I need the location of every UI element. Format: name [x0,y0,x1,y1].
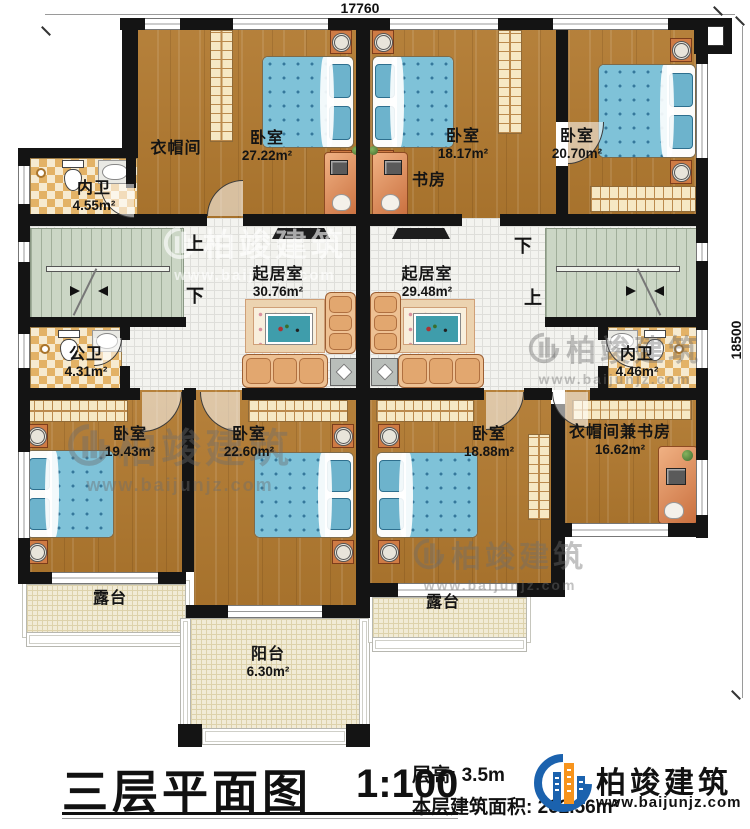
bed [376,452,478,538]
coffee-table [266,314,312,344]
party-wall [356,28,370,618]
dimension-tick [731,690,741,700]
stair-arrow [626,286,636,296]
balcony-pillar [346,724,370,747]
balcony-pillar [178,724,202,747]
window [18,166,30,204]
room-label-bath: 公卫4.31m² [65,346,108,379]
computer-monitor [666,468,686,485]
sliding-door [228,605,322,618]
window [553,18,668,30]
dimension-width: 17760 [300,0,420,16]
room-label-bath: 内卫4.46m² [616,346,659,379]
window [572,523,668,537]
bed-quilt [255,453,325,537]
bed [26,450,114,538]
room-label-bedroom: 卧室19.43m² [105,426,155,459]
nightstand [332,424,354,448]
terrace-right-parapet [372,637,527,652]
floor-height-note: 层高: 3.5m [412,760,505,787]
window [696,460,708,515]
nightstand [670,38,692,62]
terrace-left-parapet [26,632,186,647]
wall [322,605,356,618]
wall [500,214,696,226]
wall [18,317,186,327]
room-label-cloak-study: 衣帽间兼书房16.62m² [569,424,671,457]
wall [517,583,553,597]
nightstand [372,30,394,54]
window [18,334,30,368]
wardrobe [210,30,233,142]
room-label-terrace: 露台 [426,594,460,612]
stair-arrow [98,286,108,296]
stair-down-label: 下 [186,282,204,308]
window [233,18,328,30]
plant [682,450,693,461]
wardrobe [572,400,692,420]
wardrobe [248,400,348,422]
window [390,18,498,30]
chair [381,194,400,211]
wall [553,523,572,537]
nightstand [378,540,400,564]
wall [120,366,130,388]
balcony-parapet-front [202,728,348,745]
plant [369,146,378,155]
lamp-table [371,358,398,386]
room-label-bedroom: 卧室20.70m² [552,128,602,161]
shower-knob [674,344,684,354]
bed [254,452,354,538]
room-label-balcony: 阳台6.30m² [247,646,290,679]
window [52,572,158,584]
room-label-bath: 内卫4.55m² [73,180,116,213]
nightstand [670,160,692,184]
wall [590,388,696,400]
wall [30,214,207,226]
bed [598,64,696,158]
wall [186,605,228,618]
brand-url: www.baijunjz.com [596,794,741,811]
stair-up-label: 上 [186,230,204,256]
sofa [325,292,356,354]
bed-quilt [599,65,667,157]
wardrobe [498,30,522,134]
window [696,330,708,368]
title-underline [62,812,458,815]
stair-arrow [654,286,664,296]
wall [18,388,140,400]
room-label-bedroom: 卧室18.17m² [438,128,488,161]
wall [18,572,52,584]
brand-logo-icon [533,752,593,816]
stair-arrow [70,286,80,296]
nightstand [378,424,400,448]
computer-monitor [330,160,348,175]
wall [524,388,552,400]
stair-rail [46,266,170,272]
balcony-parapet-left [180,618,191,728]
shower-knob [40,344,50,354]
wardrobe [590,186,696,212]
wall [370,583,398,597]
bed-quilt [406,453,477,537]
coffee-table [414,314,460,344]
wall [158,572,186,584]
stairs-right [545,228,698,319]
window [145,18,180,30]
wall [551,404,565,597]
wall [370,388,484,400]
room-label-bedroom: 卧室27.22m² [242,130,292,163]
wall [545,317,696,327]
bed-quilt [52,451,113,537]
room-label-bedroom: 卧室18.88m² [464,426,514,459]
wall [556,28,568,122]
chair [332,194,351,211]
tv [392,228,450,239]
dimension-tick [735,16,745,26]
room-label-living: 起居室29.48m² [401,266,452,299]
sofa [242,354,328,388]
room-label-bedroom: 卧室22.60m² [224,426,274,459]
wardrobe [376,400,474,422]
wall [122,18,138,158]
floor-plan: 柏竣建筑 www.baijunjz.com 柏竣建筑 www.baijunjz.… [0,0,750,829]
dimension-height: 18500 [728,310,744,370]
title-underline-thin [62,818,458,819]
window [696,64,708,158]
nightstand [332,540,354,564]
shower-knob [36,168,46,178]
computer-monitor [384,160,402,175]
wardrobe [528,434,550,520]
room-label-cloakroom: 衣帽间 [150,140,201,158]
room-label-study: 书房 [412,172,446,190]
wall [668,523,696,537]
wall [243,214,356,226]
wall [370,214,462,226]
window [696,243,708,261]
balcony-parapet-right [359,618,370,728]
window [18,452,30,538]
wall [182,390,194,572]
room-label-terrace: 露台 [93,590,127,608]
room-label-living: 起居室30.76m² [252,266,303,299]
chair [664,502,684,519]
stairs-left [30,228,184,319]
stair-down-label: 下 [514,232,532,258]
sofa [370,292,401,354]
lamp-table [330,358,357,386]
window [18,242,30,262]
dimension-tick [41,26,51,36]
nightstand [330,30,352,54]
wall [18,148,136,158]
wardrobe [24,400,128,422]
stair-rail [556,266,680,272]
sofa [398,354,484,388]
wall [598,366,608,388]
tv [272,228,330,239]
wall [242,388,356,400]
wall [556,166,568,226]
stair-up-label: 上 [524,284,542,310]
